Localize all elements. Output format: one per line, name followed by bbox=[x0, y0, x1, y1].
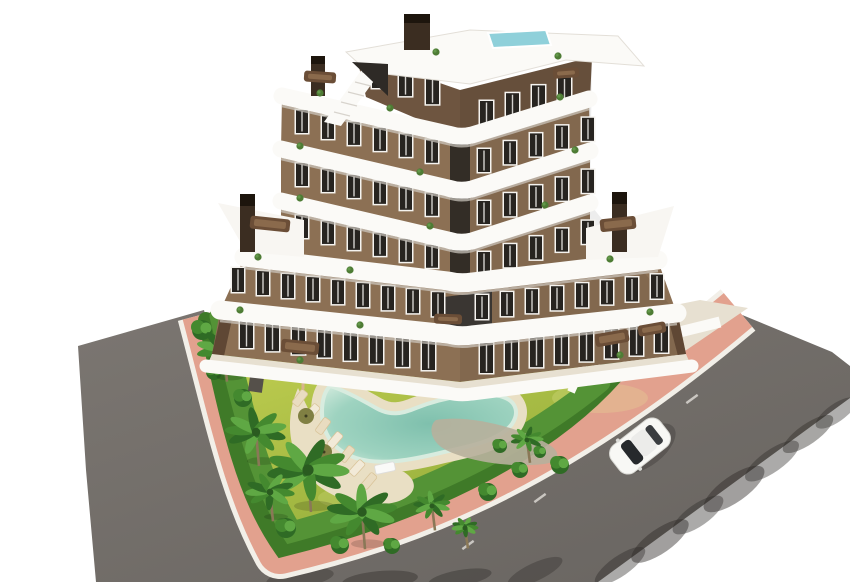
balcony-plant-highlight bbox=[557, 94, 560, 97]
window-mullion bbox=[561, 230, 562, 250]
bush-top bbox=[242, 391, 252, 401]
window-mullion bbox=[431, 246, 432, 266]
terrace-furniture bbox=[434, 314, 462, 325]
balcony-plant-highlight bbox=[347, 267, 350, 270]
window-mullion bbox=[405, 240, 406, 260]
balcony-plant-highlight bbox=[542, 202, 545, 205]
window-mullion bbox=[561, 179, 562, 199]
bush-top bbox=[559, 458, 569, 468]
palm-crown-center bbox=[463, 526, 468, 531]
bush-top bbox=[487, 485, 497, 495]
terrace-furniture bbox=[304, 70, 337, 83]
window-mullion bbox=[379, 182, 380, 202]
window-mullion bbox=[428, 342, 429, 369]
palm-shadow bbox=[351, 539, 385, 548]
window-mullion bbox=[535, 238, 536, 258]
window-mullion bbox=[636, 327, 637, 354]
window-mullion bbox=[536, 339, 537, 366]
chimney-cap bbox=[311, 56, 325, 64]
window-mullion bbox=[481, 297, 482, 318]
window-mullion bbox=[561, 336, 562, 363]
window-mullion bbox=[379, 129, 380, 149]
window-mullion bbox=[506, 294, 507, 315]
balcony-plant-highlight bbox=[417, 169, 420, 172]
balcony-plant-highlight bbox=[647, 309, 650, 312]
window-mullion bbox=[586, 333, 587, 360]
window-mullion bbox=[405, 135, 406, 155]
parasol-pole bbox=[305, 415, 308, 418]
window-mullion bbox=[483, 151, 484, 171]
window-mullion bbox=[237, 270, 238, 291]
window-mullion bbox=[535, 187, 536, 207]
window-mullion bbox=[531, 291, 532, 312]
window-mullion bbox=[581, 285, 582, 306]
balcony-plant-highlight bbox=[297, 143, 300, 146]
window-mullion bbox=[412, 291, 413, 312]
rooftop-pool bbox=[488, 30, 551, 48]
bush-top bbox=[339, 538, 349, 548]
palm-crown-center bbox=[252, 428, 260, 436]
window-mullion bbox=[312, 279, 313, 300]
palm-crown-center bbox=[302, 464, 313, 475]
apartment-building bbox=[206, 14, 748, 396]
balcony-plant-highlight bbox=[572, 147, 575, 150]
window-mullion bbox=[353, 123, 354, 143]
balcony-plant-highlight bbox=[255, 254, 258, 257]
apex-glazing-seam bbox=[450, 128, 470, 288]
window-mullion bbox=[631, 279, 632, 300]
palm-crown-center bbox=[525, 438, 530, 443]
sofa-cushions bbox=[438, 317, 458, 322]
bush-top bbox=[519, 464, 528, 473]
window-mullion bbox=[287, 276, 288, 297]
window-mullion bbox=[353, 176, 354, 196]
window-mullion bbox=[431, 194, 432, 214]
window-mullion bbox=[483, 203, 484, 223]
window-mullion bbox=[509, 246, 510, 266]
balcony-plant-highlight bbox=[317, 90, 320, 93]
palm-crown-center bbox=[267, 489, 274, 496]
window-mullion bbox=[509, 195, 510, 215]
window-mullion bbox=[556, 288, 557, 309]
window-mullion bbox=[535, 135, 536, 155]
window-mullion bbox=[587, 171, 588, 191]
window-mullion bbox=[327, 222, 328, 242]
window-mullion bbox=[402, 338, 403, 365]
window-mullion bbox=[587, 119, 588, 139]
window-mullion bbox=[509, 143, 510, 163]
balcony-plant-highlight bbox=[297, 357, 300, 360]
balcony-plant-highlight bbox=[607, 256, 610, 259]
bush-top bbox=[499, 441, 507, 449]
palm-shadow bbox=[264, 514, 288, 520]
window-mullion bbox=[405, 188, 406, 208]
window-mullion bbox=[606, 282, 607, 303]
window-mullion bbox=[379, 234, 380, 254]
bush-top bbox=[201, 323, 212, 334]
window-mullion bbox=[511, 342, 512, 369]
window-mullion bbox=[301, 112, 302, 132]
chimney-cap bbox=[612, 192, 627, 204]
window-mullion bbox=[432, 80, 433, 103]
bush-top bbox=[539, 448, 546, 455]
balcony-plant-highlight bbox=[297, 195, 300, 198]
balcony-plant-highlight bbox=[357, 322, 360, 325]
render-canvas bbox=[0, 0, 850, 582]
balcony-plant-highlight bbox=[433, 49, 436, 52]
window-mullion bbox=[437, 294, 438, 315]
window-mullion bbox=[362, 285, 363, 306]
bush-top bbox=[285, 521, 296, 532]
balcony-plant-highlight bbox=[427, 223, 430, 226]
balcony-plant-highlight bbox=[387, 105, 390, 108]
balcony-plant-highlight bbox=[617, 352, 620, 355]
window-mullion bbox=[486, 345, 487, 372]
window-mullion bbox=[483, 254, 484, 274]
window-mullion bbox=[431, 141, 432, 161]
scene-svg bbox=[0, 0, 850, 582]
window-mullion bbox=[262, 273, 263, 294]
bush-top bbox=[391, 540, 400, 549]
terrace-furniture bbox=[553, 67, 580, 79]
window-mullion bbox=[561, 127, 562, 147]
window-mullion bbox=[327, 170, 328, 190]
window-mullion bbox=[353, 228, 354, 248]
window-mullion bbox=[656, 276, 657, 297]
chimney-cap bbox=[404, 14, 430, 23]
window-mullion bbox=[337, 282, 338, 303]
window-mullion bbox=[376, 335, 377, 362]
chimney-cap bbox=[240, 194, 255, 206]
palm-crown-center bbox=[429, 503, 434, 508]
window-mullion bbox=[301, 165, 302, 185]
palm-crown-center bbox=[357, 507, 367, 517]
balcony-plant-highlight bbox=[237, 307, 240, 310]
window-mullion bbox=[350, 332, 351, 359]
balcony-plant-highlight bbox=[555, 53, 558, 56]
window-mullion bbox=[387, 288, 388, 309]
